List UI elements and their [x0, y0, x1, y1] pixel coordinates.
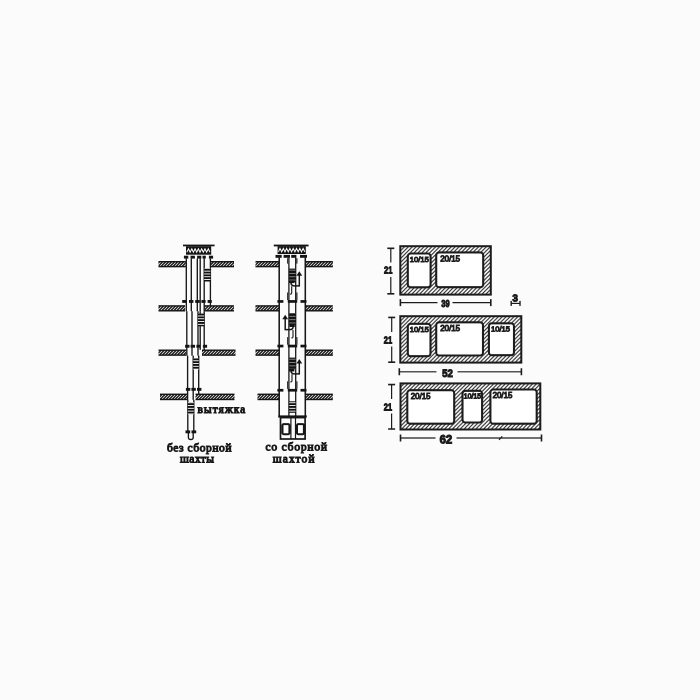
svg-text:21: 21	[384, 401, 393, 413]
svg-text:со сборной: со сборной	[266, 442, 328, 454]
svg-text:шахты: шахты	[180, 453, 214, 465]
svg-text:21: 21	[384, 265, 393, 277]
svg-text:10/15: 10/15	[410, 325, 429, 334]
svg-text:3: 3	[512, 293, 518, 304]
svg-text:62: 62	[440, 434, 453, 446]
svg-text:10/15: 10/15	[410, 255, 429, 264]
svg-text:20/15: 20/15	[493, 391, 513, 400]
svg-text:20/15: 20/15	[440, 255, 460, 264]
svg-text:20/15: 20/15	[440, 324, 460, 333]
svg-text:52: 52	[442, 368, 453, 380]
svg-text:10/15: 10/15	[464, 394, 481, 401]
svg-text:шахтой: шахтой	[273, 453, 316, 465]
svg-text:10/15: 10/15	[491, 325, 510, 334]
svg-text:20/15: 20/15	[411, 392, 431, 401]
svg-text:вытяжка: вытяжка	[198, 404, 247, 416]
svg-text:39: 39	[441, 298, 450, 310]
svg-text:21: 21	[384, 334, 393, 346]
